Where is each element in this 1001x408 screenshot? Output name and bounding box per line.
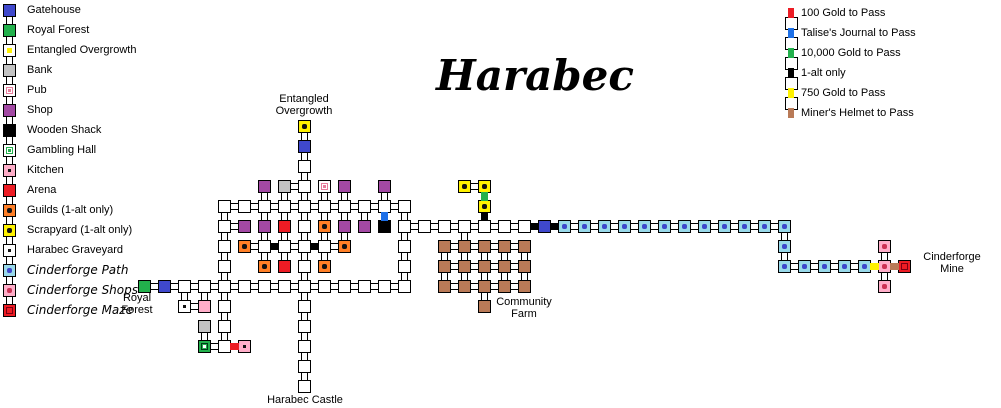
room-p [258, 200, 271, 213]
room-path [838, 260, 851, 273]
room-p [238, 200, 251, 213]
legend-label: Shop [27, 104, 53, 117]
harabec-castle-label: Harabec Castle [267, 394, 343, 406]
room-farm [438, 280, 451, 293]
room-farm [458, 280, 471, 293]
room-p [398, 200, 411, 213]
room-p [218, 300, 231, 313]
room-p [298, 280, 311, 293]
legend-door-blue [788, 28, 794, 38]
room-p [218, 260, 231, 273]
room-shops [878, 240, 891, 253]
legend-label: Kitchen [27, 164, 64, 177]
room-shop [338, 220, 351, 233]
door-black [481, 212, 488, 221]
room-p [298, 380, 311, 393]
room-path [638, 220, 651, 233]
legend-label: Bank [27, 64, 52, 77]
room-p [178, 280, 191, 293]
room-p [438, 220, 451, 233]
door-black [530, 223, 539, 230]
legend-icon-shop [3, 104, 16, 117]
room-p [398, 220, 411, 233]
harabec-map-image: Harabec GatehouseRoyal ForestEntangled O… [0, 0, 1001, 408]
room-p [298, 220, 311, 233]
room-gamble [198, 340, 211, 353]
room-farm [498, 240, 511, 253]
legend-label: Wooden Shack [27, 124, 101, 137]
legend-label: Scrapyard (1-alt only) [27, 224, 132, 237]
room-path [598, 220, 611, 233]
room-path [718, 220, 731, 233]
room-farm [458, 240, 471, 253]
room-p [298, 300, 311, 313]
room-path [818, 260, 831, 273]
room-p [478, 220, 491, 233]
door-green [481, 192, 488, 201]
room-shop [258, 180, 271, 193]
room-bank [198, 320, 211, 333]
room-p [198, 280, 211, 293]
room-scrap [458, 180, 471, 193]
room-path [778, 260, 791, 273]
community-farm-label: Community Farm [496, 296, 552, 320]
legend-door-yellow [788, 88, 794, 98]
legend-label: 1-alt only [801, 67, 846, 80]
room-p [318, 280, 331, 293]
room-farm [478, 280, 491, 293]
door-brown [890, 263, 899, 270]
legend-label: Guilds (1-alt only) [27, 204, 113, 217]
room-p [398, 240, 411, 253]
room-path [758, 220, 771, 233]
room-p [338, 200, 351, 213]
legend-door-red [788, 8, 794, 18]
legend-door-brown [788, 108, 794, 118]
legend-label: Entangled Overgrowth [27, 44, 136, 57]
room-guild [258, 260, 271, 273]
room-p [218, 280, 231, 293]
room-bank [278, 180, 291, 193]
room-p [298, 200, 311, 213]
room-p [218, 200, 231, 213]
room-shop [378, 180, 391, 193]
room-arena [278, 220, 291, 233]
legend-label: Cinderforge Path [27, 264, 128, 277]
room-p [298, 320, 311, 333]
room-guild [318, 260, 331, 273]
room-shop [358, 220, 371, 233]
room-maze [898, 260, 911, 273]
door-black [270, 243, 279, 250]
legend-icon-pub [3, 84, 16, 97]
room-shop [238, 220, 251, 233]
room-path [578, 220, 591, 233]
room-shop [258, 220, 271, 233]
room-arena [278, 260, 291, 273]
door-black [310, 243, 319, 250]
room-p [378, 280, 391, 293]
room-path [778, 240, 791, 253]
legend-label: 10,000 Gold to Pass [801, 47, 901, 60]
room-p [358, 200, 371, 213]
legend-label: Miner's Helmet to Pass [801, 107, 914, 120]
room-p [358, 280, 371, 293]
room-shack [378, 220, 391, 233]
room-guild [238, 240, 251, 253]
room-grave [178, 300, 191, 313]
room-path [618, 220, 631, 233]
room-farm [518, 260, 531, 273]
door-black [550, 223, 559, 230]
room-p [278, 240, 291, 253]
room-p [218, 320, 231, 333]
room-path [658, 220, 671, 233]
legend-label: Gambling Hall [27, 144, 96, 157]
legend-icon-forest [3, 24, 16, 37]
legend-door-black [788, 68, 794, 78]
room-farm [478, 300, 491, 313]
room-p [418, 220, 431, 233]
room-pink [198, 300, 211, 313]
legend-label: Talise's Journal to Pass [801, 27, 916, 40]
room-p [398, 260, 411, 273]
legend-label: 100 Gold to Pass [801, 7, 885, 20]
room-path [798, 260, 811, 273]
legend-label: Gatehouse [27, 4, 81, 17]
room-guild [338, 240, 351, 253]
room-path [558, 220, 571, 233]
legend-icon-bank [3, 64, 16, 77]
room-farm [438, 240, 451, 253]
legend-icon-shack [3, 124, 16, 137]
room-farm [518, 280, 531, 293]
room-pub [318, 180, 331, 193]
room-p [298, 180, 311, 193]
room-gate [158, 280, 171, 293]
room-p [318, 240, 331, 253]
room-farm [438, 260, 451, 273]
room-farm [458, 260, 471, 273]
room-shops [878, 280, 891, 293]
legend-label: Arena [27, 184, 56, 197]
room-p [238, 280, 251, 293]
legend-label: Royal Forest [27, 24, 89, 37]
legend-icon-gambleL [3, 144, 16, 157]
room-gate [298, 140, 311, 153]
legend-icon-maze [3, 304, 16, 317]
legend-icon-grave [3, 244, 16, 257]
map-title: Harabec [436, 54, 634, 98]
legend-icon-eoL [3, 44, 16, 57]
legend-door-green [788, 48, 794, 58]
room-shop [338, 180, 351, 193]
legend-icon-guild [3, 204, 16, 217]
room-p [298, 360, 311, 373]
legend-icon-scrap [3, 224, 16, 237]
entangled-overgrowth-label: Entangled Overgrowth [276, 93, 333, 117]
room-p [458, 220, 471, 233]
room-path [698, 220, 711, 233]
room-p [218, 220, 231, 233]
room-farm [498, 280, 511, 293]
room-p [218, 240, 231, 253]
room-p [318, 200, 331, 213]
room-p [298, 160, 311, 173]
room-p [338, 280, 351, 293]
room-path [738, 220, 751, 233]
room-guild [318, 220, 331, 233]
room-p [258, 280, 271, 293]
room-farm [498, 260, 511, 273]
room-farm [518, 240, 531, 253]
room-p [498, 220, 511, 233]
cinderforge-mine-label: Cinderforge Mine [923, 251, 980, 275]
legend-icon-arena [3, 184, 16, 197]
room-p [298, 340, 311, 353]
legend-icon-path [3, 264, 16, 277]
legend-label: Harabec Graveyard [27, 244, 123, 257]
legend-label: 750 Gold to Pass [801, 87, 885, 100]
door-blue [381, 212, 388, 221]
legend-icon-kitchen [3, 164, 16, 177]
room-path [678, 220, 691, 233]
room-eo [298, 120, 311, 133]
door-yellow [870, 263, 879, 270]
legend-label: Pub [27, 84, 47, 97]
room-farm [478, 240, 491, 253]
room-path [778, 220, 791, 233]
room-p [298, 260, 311, 273]
room-p [398, 280, 411, 293]
room-p [278, 200, 291, 213]
legend-icon-gate [3, 4, 16, 17]
royal-forest-label: Royal Forest [121, 292, 152, 316]
room-p [278, 280, 291, 293]
room-kitchen [238, 340, 251, 353]
door-red [230, 343, 239, 350]
legend-label: Cinderforge Maze [27, 304, 133, 317]
room-farm [478, 260, 491, 273]
legend-icon-shops [3, 284, 16, 297]
